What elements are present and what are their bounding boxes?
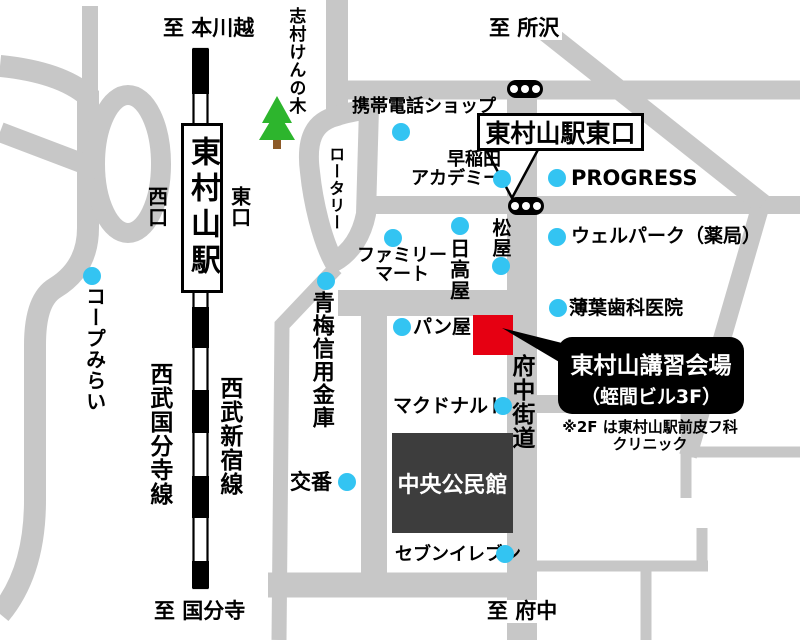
landmark-dot <box>494 397 512 415</box>
station-west-exit: 西口 <box>145 186 167 228</box>
community-center-building: 中央公民館 <box>392 433 513 533</box>
direction-south-west: 至 国分寺 <box>151 600 248 623</box>
station-box: 東村山駅 <box>181 123 223 293</box>
traffic-light-icon <box>508 197 544 215</box>
route-map: 至 本川越 至 所沢 至 国分寺 至 府中 東村山駅 西口 東口 東村山駅東口 … <box>0 0 800 640</box>
landmark-dot <box>393 318 411 336</box>
landmark-welpark: ウェルパーク（薬局） <box>571 226 761 247</box>
station-name: 東村山駅 <box>180 136 224 280</box>
venue-title: 東村山講習会場 <box>558 346 744 380</box>
landmark-usuba-dental: 薄葉歯科医院 <box>569 298 683 319</box>
landmark-dot <box>548 169 566 187</box>
direction-north-east: 至 所沢 <box>486 17 562 40</box>
landmark-dot <box>492 257 510 275</box>
landmark-dot <box>317 272 335 290</box>
landmark-mcdonalds: マクドナルド <box>393 396 507 417</box>
station-east-exit: 東口 <box>228 186 250 228</box>
landmark-dot <box>493 170 511 188</box>
venue-subtitle: （蛭間ビル3F） <box>558 382 744 409</box>
landmark-waseda: 早稲田 アカデミー <box>395 150 501 189</box>
landmark-familymart: ファミリー マート <box>357 246 447 285</box>
landmark-dot <box>338 473 356 491</box>
direction-south-east: 至 府中 <box>484 600 560 623</box>
rail-line-kokubunji: 西武国分寺線 <box>146 362 171 506</box>
rotary-label: ロータリー <box>327 146 344 231</box>
landmark-dot <box>549 299 567 317</box>
landmark-bakery: パン屋 <box>413 317 471 338</box>
landmark-ome-shinkin: 青梅信用金庫 <box>309 291 333 429</box>
direction-north-west: 至 本川越 <box>160 17 257 40</box>
venue-callout: 東村山講習会場 （蛭間ビル3F） <box>558 337 744 414</box>
landmark-coop-mirai: コープみらい <box>83 286 105 412</box>
landmark-mobile-shop: 携帯電話ショップ <box>352 97 496 116</box>
landmark-progress: PROGRESS <box>571 167 697 190</box>
landmark-dot <box>496 545 514 563</box>
tree-label: 志村けんの木 <box>286 7 304 115</box>
landmark-dot <box>392 123 410 141</box>
traffic-light-icon <box>507 80 543 98</box>
rail-line-shinjuku: 西武新宿線 <box>216 376 241 496</box>
landmark-dot <box>451 217 469 235</box>
east-exit-sign: 東村山駅東口 <box>477 113 644 151</box>
venue-location-marker <box>473 315 513 355</box>
venue-note: ※2F は東村山駅前皮フ科 クリニック <box>552 419 748 454</box>
landmark-dot <box>548 228 566 246</box>
landmark-hidakaya: 日高屋 <box>447 238 469 301</box>
landmark-koban: 交番 <box>290 471 332 494</box>
landmark-dot <box>83 267 101 285</box>
landmark-matsuya: 松屋 <box>490 218 511 258</box>
